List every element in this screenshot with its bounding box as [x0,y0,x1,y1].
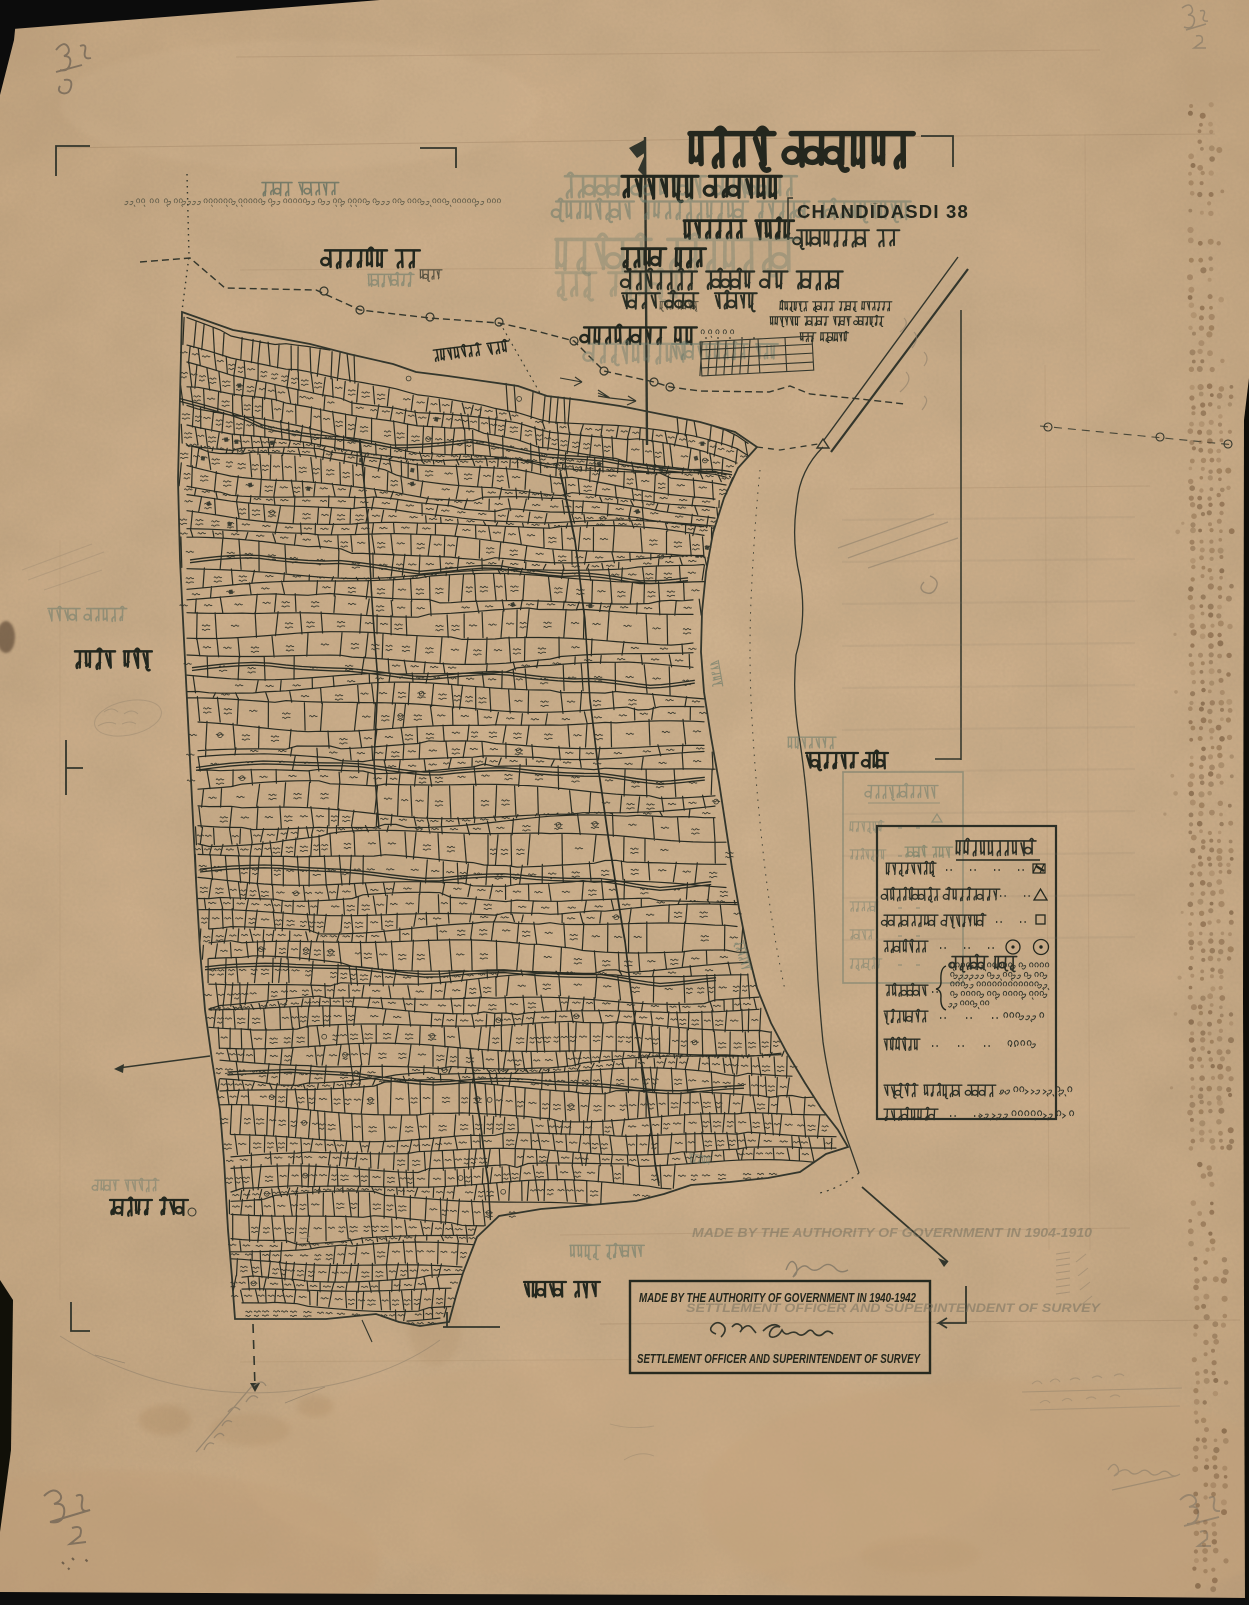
svg-text:_: _ [872,196,878,205]
svg-text:SETTLEMENT OFFICER AND SUPERIN: SETTLEMENT OFFICER AND SUPERINTENDENT OF… [637,1352,921,1366]
svg-text:MADE BY THE AUTHORITY OF GOVER: MADE BY THE AUTHORITY OF GOVERNMENT IN 1… [692,1225,1092,1240]
svg-text:SETTLEMENT OFFICER AND SUPERIN: SETTLEMENT OFFICER AND SUPERINTENDENT OF… [686,1303,1102,1315]
svg-text:CHANDIDASDI 38: CHANDIDASDI 38 [797,201,969,222]
